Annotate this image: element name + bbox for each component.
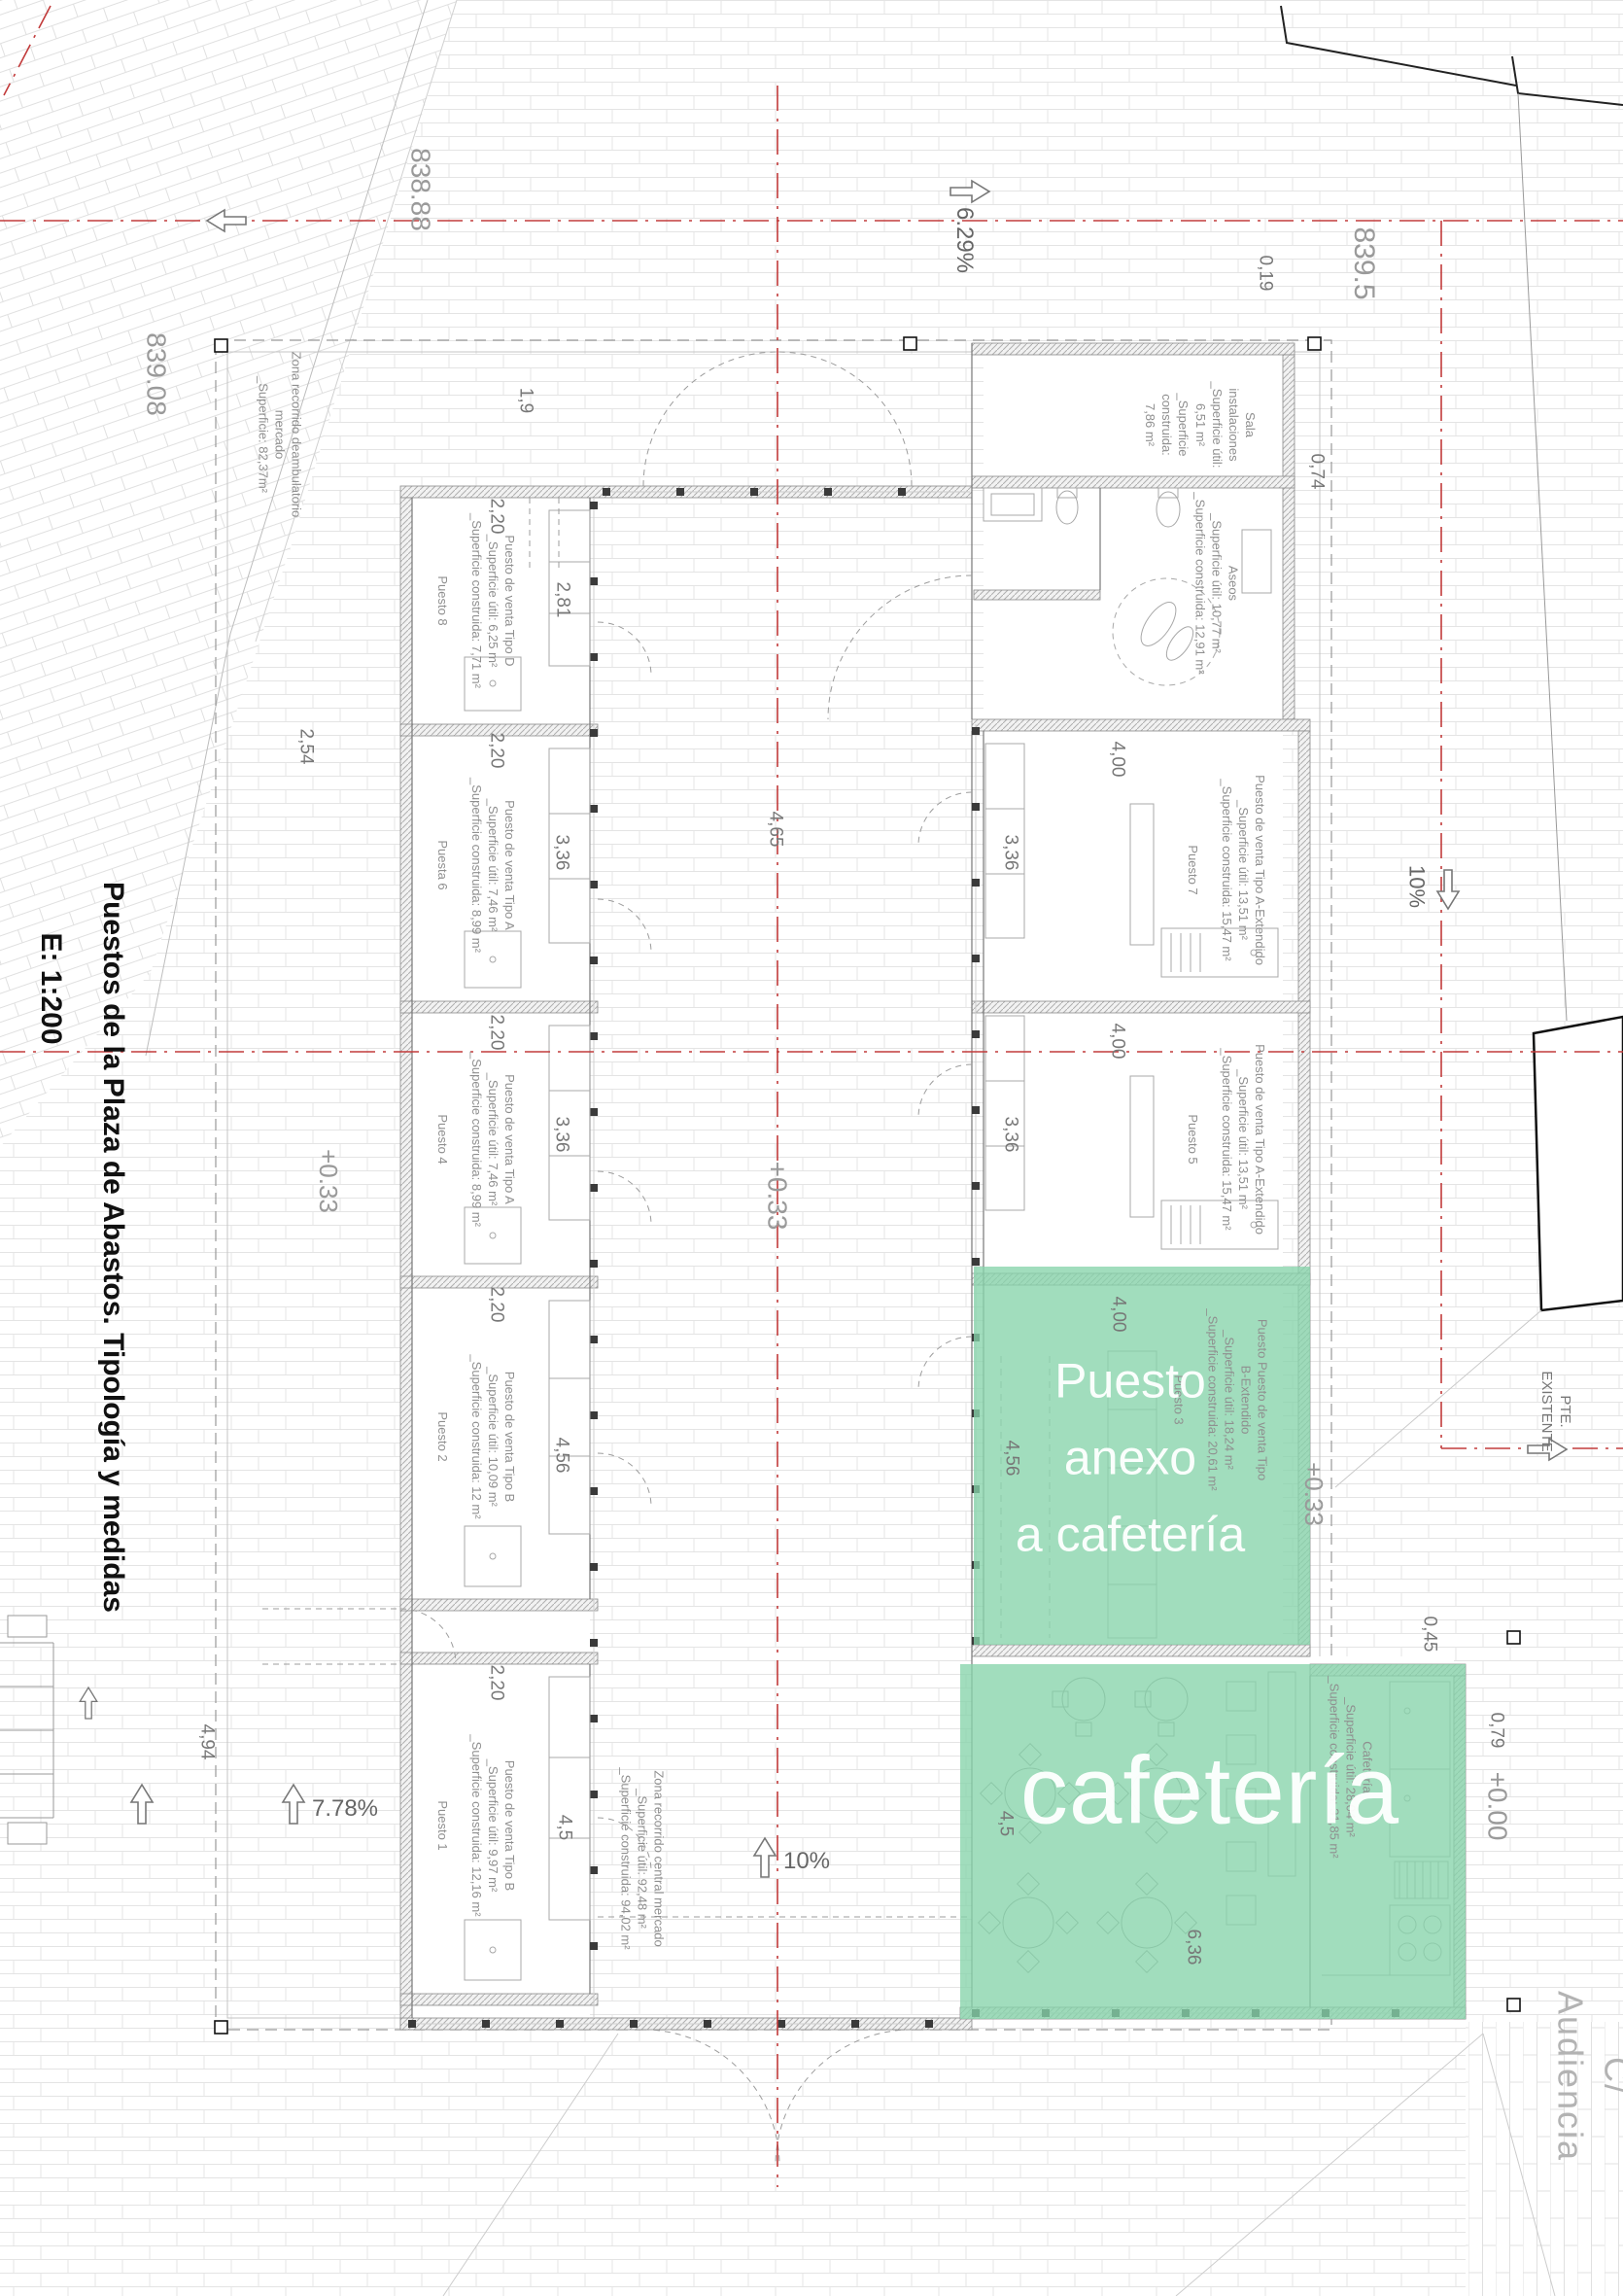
room-label-puesto5: Puesto de venta Tipo A-Extendido _Superf… — [1185, 1044, 1268, 1235]
elevation-838-88: 838.88 — [402, 148, 438, 231]
dim-2-81: 2,81 — [550, 582, 574, 618]
room-label-puesto4: Puesto de venta Tipo A _Superficie útil:… — [434, 1052, 518, 1227]
elevation-839-5: 839.5 — [1344, 226, 1383, 299]
dim-1-9: 1,9 — [513, 388, 537, 413]
dim-2-54: 2,54 — [294, 729, 318, 765]
dim-4-5-caf: 4,5 — [993, 1811, 1018, 1836]
zone-perimeter-label: Zona recorrido deambulatorio mercado _Su… — [255, 352, 304, 518]
highlight-cafeteria-text: cafetería — [1020, 1727, 1399, 1853]
floor-plan-drawing — [0, 0, 1623, 2296]
street-name: C/ Audiencia — [1547, 1991, 1623, 2162]
dim-4-56-p2: 4,56 — [549, 1438, 573, 1474]
dim-2-20-p8: 2,20 — [484, 499, 508, 535]
room-label-puesto1: Puesto de venta Tipo B _Superficie útil:… — [434, 1734, 518, 1916]
room-label-puesto6: Puesto de venta Tipo A _Superficie útil:… — [434, 778, 518, 953]
slope-north-label: 6.29% — [949, 207, 980, 273]
sheet-scale: E: 1:200 — [31, 932, 70, 1044]
dim-4-94: 4,94 — [194, 1724, 219, 1760]
dim-4-00-p5: 4,00 — [1105, 1024, 1129, 1060]
floor-plan-sheet: Puestos de la Plaza de Abastos. Tipologí… — [0, 0, 1623, 2296]
slope-west-label: 7.78% — [312, 1793, 378, 1825]
level-plus033-east: +0.33 — [1297, 1462, 1330, 1526]
level-plus000: +0.00 — [1479, 1772, 1515, 1841]
dim-6-36: 6,36 — [1181, 1930, 1205, 1966]
dim-4-00-p7: 4,00 — [1105, 742, 1129, 778]
slope-south-label: 10% — [783, 1846, 830, 1877]
highlight-anexo-text: Puesto anexo a cafetería — [1016, 1343, 1245, 1574]
dim-0-19: 0,19 — [1253, 256, 1277, 292]
dim-3-36-p7: 3,36 — [998, 835, 1022, 871]
dim-3-36-p5: 3,36 — [998, 1117, 1022, 1153]
level-plus033-west: +0.33 — [312, 1149, 345, 1213]
zone-central-label: Zona recorrido central mercado _Superfic… — [617, 1767, 667, 1949]
dim-2-20-p6: 2,20 — [484, 733, 508, 769]
room-label-sala: Sala instalaciones _Superficie útil: 6,5… — [1142, 382, 1259, 469]
elevation-839-08: 839.08 — [138, 332, 174, 416]
dim-4-5-p1: 4,5 — [552, 1815, 576, 1840]
dim-4-56-p3: 4,56 — [999, 1441, 1023, 1477]
dim-3-36-p6: 3,36 — [549, 835, 573, 871]
dim-4-00-p3: 4,00 — [1106, 1297, 1130, 1333]
dim-4-65: 4,65 — [763, 812, 787, 848]
room-label-aseos: Aseos _Superficie útil: 10,77 m² _Superf… — [1191, 492, 1241, 674]
level-plus033-center: +0.33 — [759, 1162, 795, 1231]
pte-existente-label: PTE. EXISTENTE — [1537, 1371, 1573, 1451]
dim-0-79: 0,79 — [1484, 1713, 1508, 1749]
room-label-puesto2: Puesto de venta Tipo B _Superficie útil:… — [434, 1354, 518, 1518]
room-label-puesto7: Puesto de venta Tipo A-Extendido _Superf… — [1185, 775, 1268, 965]
slope-east-label: 10% — [1402, 865, 1431, 908]
dim-2-20-p4: 2,20 — [484, 1015, 508, 1051]
room-label-puesto8: Puesto de venta Tipo D _Superficie útil:… — [434, 513, 518, 688]
dim-2-20-p2: 2,20 — [484, 1287, 508, 1323]
dim-0-45: 0,45 — [1417, 1617, 1441, 1652]
dim-2-20-p1: 2,20 — [484, 1665, 508, 1701]
sheet-title: Puestos de la Plaza de Abastos. Tipologí… — [93, 882, 132, 1613]
dim-3-36-p4: 3,36 — [549, 1117, 573, 1153]
dim-0-74: 0,74 — [1304, 454, 1329, 490]
